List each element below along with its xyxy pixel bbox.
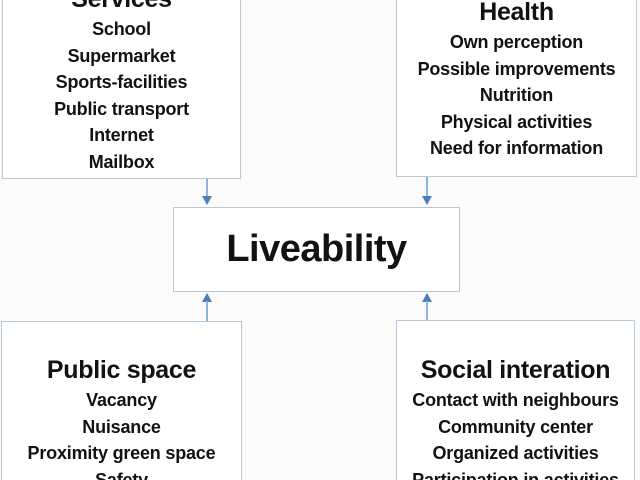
list-item: Need for information: [397, 135, 636, 162]
list-item: Participation in activities: [397, 467, 634, 480]
list-item: Organized activities: [397, 440, 634, 467]
list-item: Nutrition: [397, 82, 636, 109]
social-interaction-title: Social interation: [397, 353, 634, 387]
arrowhead-down: [202, 196, 212, 205]
list-item: Own perception: [397, 29, 636, 56]
list-item: Contact with neighbours: [397, 387, 634, 414]
public-space-box: Public space Vacancy Nuisance Proximity …: [1, 321, 242, 480]
list-item: Mailbox: [3, 149, 240, 176]
list-item: Proximity green space: [2, 440, 241, 467]
list-item: Internet: [3, 122, 240, 149]
services-box: Services School Supermarket Sports-facil…: [2, 0, 241, 179]
list-item: School: [3, 16, 240, 43]
list-item: Physical activities: [397, 109, 636, 136]
arrow-line: [206, 301, 208, 321]
list-item: Safety: [2, 467, 241, 480]
list-item: Supermarket: [3, 43, 240, 70]
list-item: Public transport: [3, 96, 240, 123]
health-box: Health Own perception Possible improveme…: [396, 0, 637, 177]
arrow-line: [426, 301, 428, 320]
list-item: Possible improvements: [397, 56, 636, 83]
arrowhead-down: [422, 196, 432, 205]
public-space-title: Public space: [2, 353, 241, 387]
liveability-label: Liveability: [174, 208, 459, 291]
liveability-box: Liveability: [173, 207, 460, 292]
list-item: Vacancy: [2, 387, 241, 414]
list-item: Community center: [397, 414, 634, 441]
arrow-line: [206, 179, 208, 197]
services-title: Services: [3, 0, 240, 16]
list-item: Nuisance: [2, 414, 241, 441]
social-interaction-box: Social interation Contact with neighbour…: [396, 320, 635, 480]
liveability-diagram: Services School Supermarket Sports-facil…: [0, 0, 640, 480]
list-item: Sports-facilities: [3, 69, 240, 96]
health-title: Health: [397, 0, 636, 29]
arrow-line: [426, 177, 428, 197]
